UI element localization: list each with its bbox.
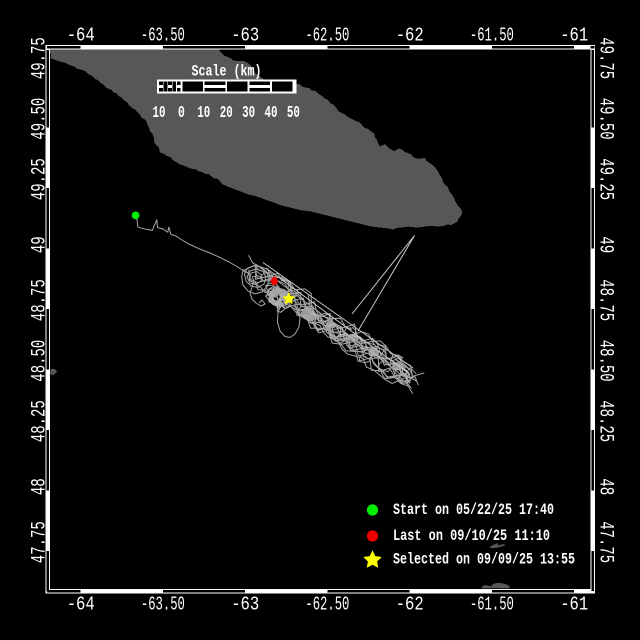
- svg-text:10: 10: [197, 104, 210, 123]
- svg-text:48.50: 48.50: [594, 340, 617, 382]
- svg-text:-61: -61: [560, 25, 588, 47]
- svg-text:-62.50: -62.50: [305, 594, 349, 616]
- svg-text:-63.50: -63.50: [141, 25, 185, 47]
- svg-text:48: 48: [594, 478, 617, 495]
- svg-text:48.25: 48.25: [29, 400, 52, 442]
- svg-text:40: 40: [265, 104, 278, 123]
- svg-text:30: 30: [242, 104, 255, 123]
- svg-text:Last on 09/10/25 11:10: Last on 09/10/25 11:10: [393, 527, 550, 545]
- svg-text:48: 48: [29, 478, 52, 495]
- svg-text:50: 50: [287, 104, 300, 123]
- svg-text:Start on 05/22/25 17:40: Start on 05/22/25 17:40: [393, 501, 554, 519]
- svg-text:-62: -62: [396, 25, 424, 47]
- svg-text:49.50: 49.50: [29, 98, 52, 140]
- svg-text:49.75: 49.75: [594, 37, 617, 79]
- svg-text:-62: -62: [396, 594, 424, 616]
- svg-text:Selected on 09/09/25 13:55: Selected on 09/09/25 13:55: [393, 551, 575, 569]
- svg-text:-64: -64: [67, 25, 95, 47]
- svg-text:49.50: 49.50: [594, 98, 617, 140]
- svg-text:-63: -63: [231, 594, 259, 616]
- svg-text:-62.50: -62.50: [305, 25, 349, 47]
- svg-text:48.25: 48.25: [594, 400, 617, 442]
- svg-text:-61.50: -61.50: [470, 594, 514, 616]
- svg-text:-61.50: -61.50: [470, 25, 514, 47]
- svg-text:-64: -64: [67, 594, 95, 616]
- svg-text:49: 49: [29, 236, 52, 253]
- svg-text:10: 10: [153, 104, 166, 123]
- svg-text:20: 20: [220, 104, 233, 123]
- svg-text:Scale (km): Scale (km): [192, 63, 262, 81]
- svg-text:-61: -61: [560, 594, 588, 616]
- svg-text:-63: -63: [231, 25, 259, 47]
- svg-text:0: 0: [178, 104, 185, 123]
- svg-text:49.75: 49.75: [29, 37, 52, 79]
- svg-text:49.25: 49.25: [29, 158, 52, 200]
- svg-text:49: 49: [594, 236, 617, 253]
- svg-text:47.75: 47.75: [594, 521, 617, 563]
- svg-text:48.75: 48.75: [594, 279, 617, 321]
- svg-text:48.75: 48.75: [29, 279, 52, 321]
- svg-text:-63.50: -63.50: [141, 594, 185, 616]
- svg-text:47.75: 47.75: [29, 521, 52, 563]
- svg-text:49.25: 49.25: [594, 158, 617, 200]
- svg-text:48.50: 48.50: [29, 340, 52, 382]
